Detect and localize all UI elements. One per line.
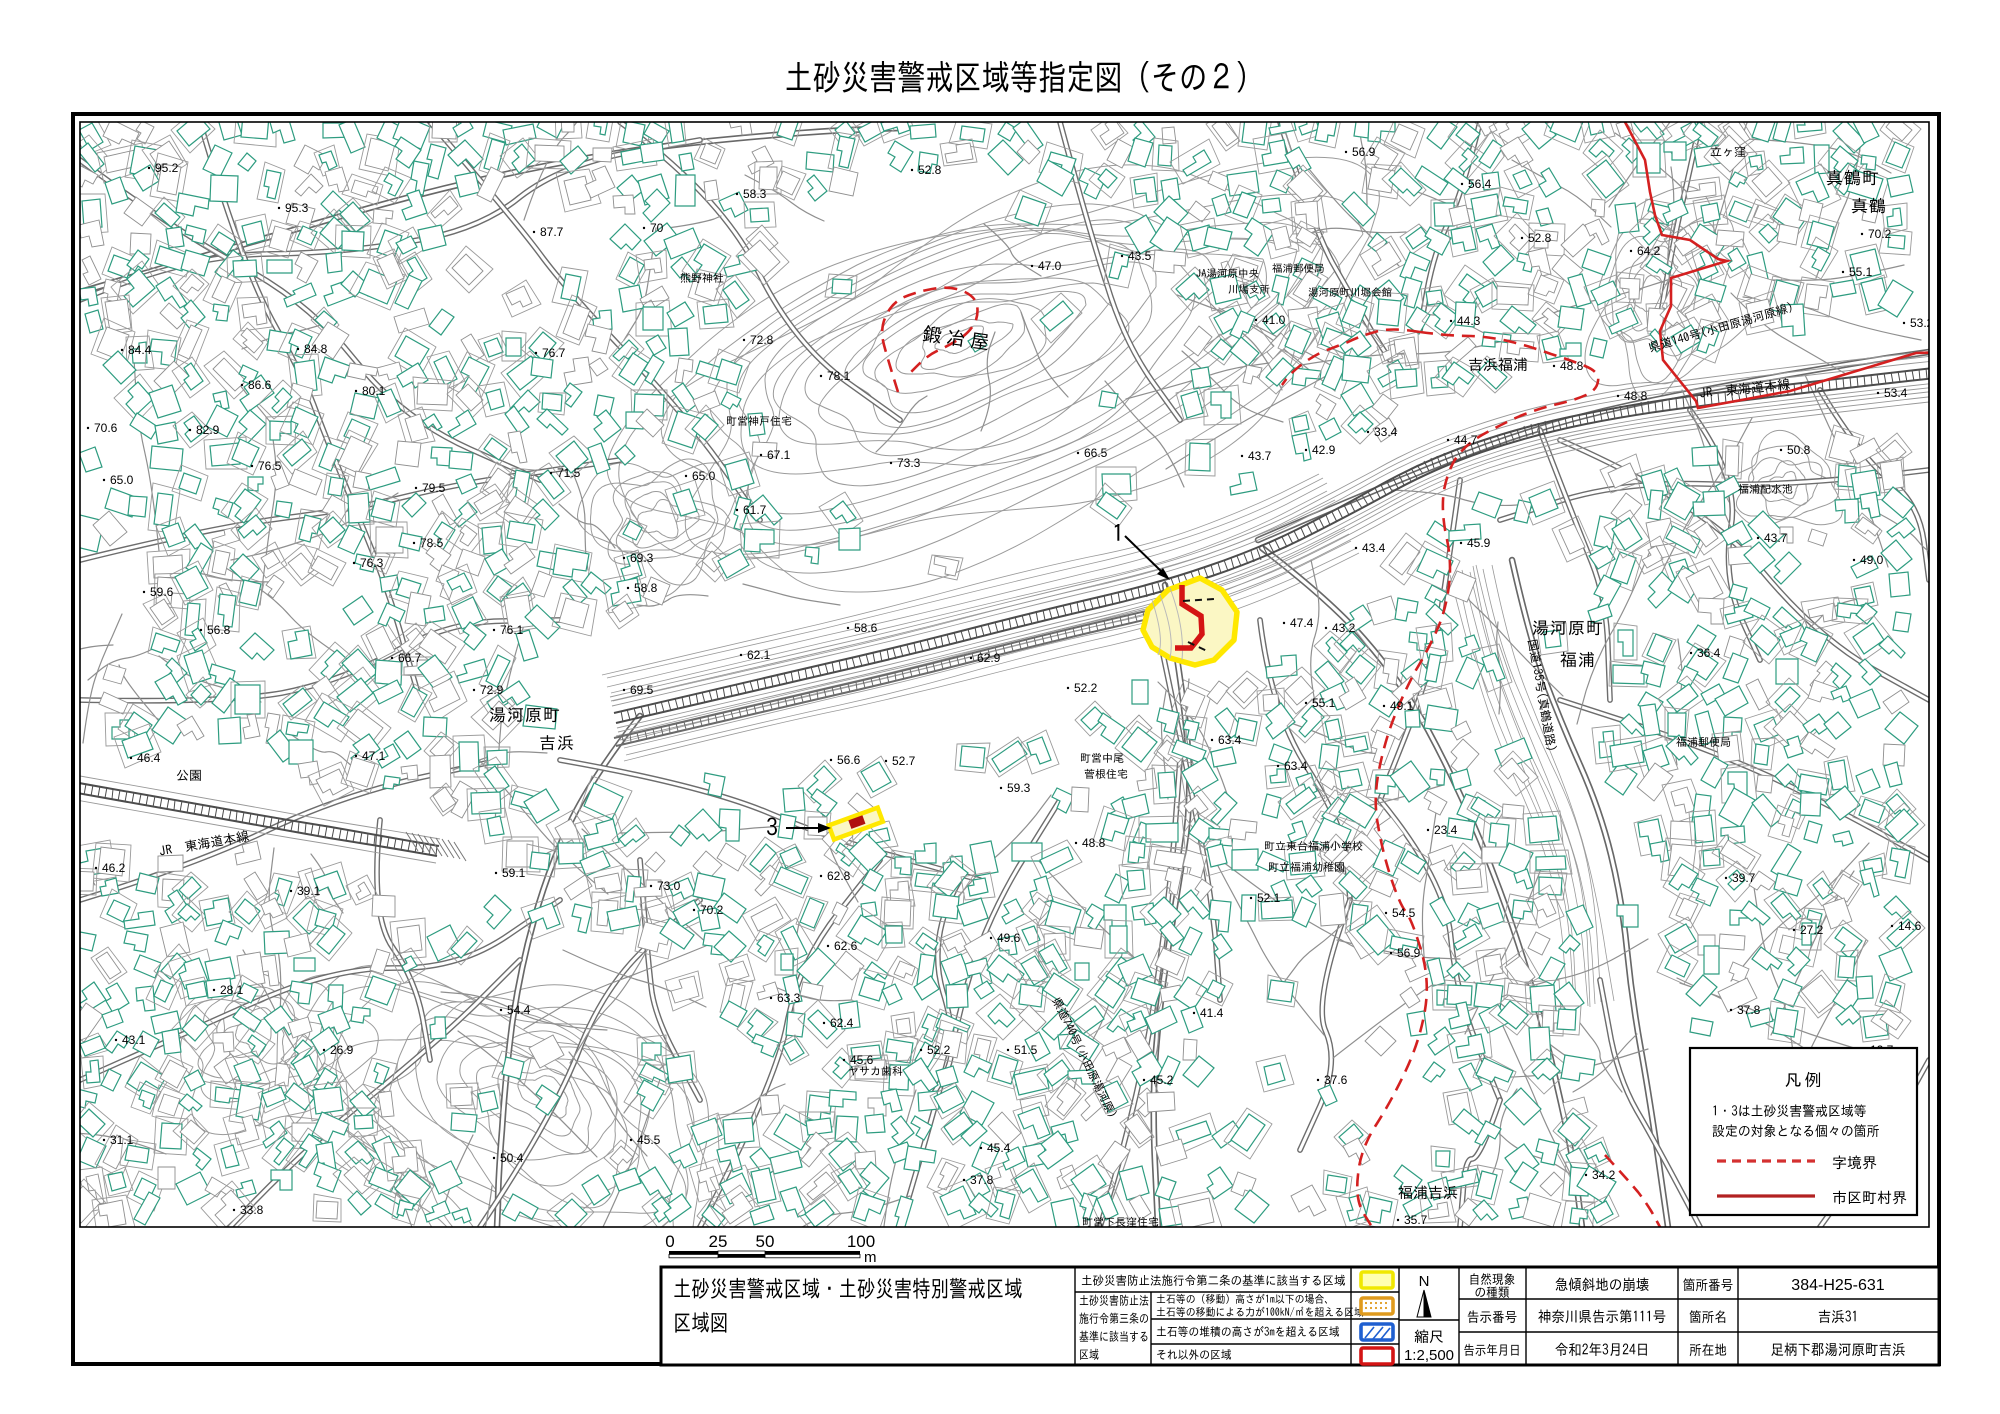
svg-text:N: N: [1419, 1273, 1430, 1290]
svg-text:61.7: 61.7: [743, 503, 767, 517]
svg-text:36.4: 36.4: [1697, 646, 1721, 660]
svg-text:76.7: 76.7: [542, 346, 566, 360]
svg-text:95.3: 95.3: [285, 201, 309, 215]
svg-text:56.4: 56.4: [1468, 177, 1492, 191]
svg-text:54.4: 54.4: [507, 1003, 531, 1017]
svg-text:33.4: 33.4: [1374, 425, 1398, 439]
svg-text:62.9: 62.9: [977, 651, 1001, 665]
svg-text:50.4: 50.4: [500, 1151, 524, 1165]
svg-text:51.5: 51.5: [1014, 1043, 1038, 1057]
svg-text:0: 0: [665, 1232, 674, 1251]
svg-text:72.9: 72.9: [480, 683, 504, 697]
svg-text:46.2: 46.2: [102, 861, 126, 875]
svg-text:33.8: 33.8: [240, 1203, 264, 1217]
svg-text:82.9: 82.9: [196, 423, 220, 437]
svg-text:m: m: [864, 1249, 877, 1266]
svg-text:80.1: 80.1: [362, 384, 386, 398]
svg-text:43.1: 43.1: [122, 1033, 146, 1047]
svg-text:95.2: 95.2: [155, 161, 179, 175]
svg-text:66.5: 66.5: [1084, 446, 1108, 460]
svg-text:49.6: 49.6: [997, 931, 1021, 945]
svg-text:58.8: 58.8: [634, 581, 658, 595]
svg-text:42.9: 42.9: [1312, 443, 1336, 457]
svg-text:86.6: 86.6: [248, 378, 272, 392]
svg-text:14.6: 14.6: [1898, 919, 1922, 933]
svg-text:62.8: 62.8: [827, 869, 851, 883]
svg-text:79.5: 79.5: [422, 481, 446, 495]
svg-text:50: 50: [756, 1232, 775, 1251]
svg-text:25: 25: [709, 1232, 728, 1251]
svg-text:1:2,500: 1:2,500: [1404, 1347, 1454, 1364]
svg-text:47.0: 47.0: [1038, 259, 1062, 273]
svg-text:49.1: 49.1: [1390, 699, 1414, 713]
svg-text:28.1: 28.1: [220, 983, 244, 997]
svg-text:52.8: 52.8: [918, 163, 942, 177]
svg-text:56.9: 56.9: [1352, 145, 1376, 159]
svg-text:62.4: 62.4: [830, 1016, 854, 1030]
svg-text:43.7: 43.7: [1248, 449, 1272, 463]
svg-text:87.7: 87.7: [540, 225, 564, 239]
svg-text:70.2: 70.2: [1868, 227, 1892, 241]
svg-text:48.8: 48.8: [1082, 836, 1106, 850]
svg-text:41.4: 41.4: [1200, 1006, 1224, 1020]
svg-text:69.5: 69.5: [630, 683, 654, 697]
svg-text:37.8: 37.8: [1737, 1003, 1761, 1017]
svg-text:43.5: 43.5: [1128, 249, 1152, 263]
svg-text:63.3: 63.3: [777, 991, 801, 1005]
svg-text:45.6: 45.6: [850, 1053, 874, 1067]
svg-text:64.2: 64.2: [1637, 244, 1661, 258]
svg-text:44.7: 44.7: [1454, 433, 1478, 447]
svg-text:55.1: 55.1: [1849, 265, 1873, 279]
svg-text:76.3: 76.3: [360, 556, 384, 570]
svg-text:48.8: 48.8: [1624, 389, 1648, 403]
svg-text:43.4: 43.4: [1362, 541, 1386, 555]
svg-text:47.4: 47.4: [1290, 616, 1314, 630]
svg-text:55.1: 55.1: [1312, 696, 1336, 710]
svg-text:41.0: 41.0: [1262, 313, 1286, 327]
svg-text:70: 70: [650, 221, 664, 235]
svg-text:50.8: 50.8: [1787, 443, 1811, 457]
svg-text:37.6: 37.6: [1324, 1073, 1348, 1087]
svg-text:26.9: 26.9: [330, 1043, 354, 1057]
svg-text:76.5: 76.5: [258, 459, 282, 473]
svg-text:44.3: 44.3: [1457, 314, 1481, 328]
svg-text:39.7: 39.7: [1732, 871, 1756, 885]
svg-text:31.1: 31.1: [110, 1133, 134, 1147]
svg-text:70.2: 70.2: [700, 903, 724, 917]
svg-text:52.1: 52.1: [1257, 891, 1281, 905]
svg-text:43.7: 43.7: [1764, 531, 1788, 545]
svg-text:52.7: 52.7: [892, 754, 916, 768]
svg-text:58.3: 58.3: [743, 187, 767, 201]
svg-text:84.4: 84.4: [128, 343, 152, 357]
svg-text:76.1: 76.1: [500, 623, 524, 637]
svg-text:56.9: 56.9: [1397, 946, 1421, 960]
svg-text:52.2: 52.2: [1074, 681, 1098, 695]
svg-text:46.4: 46.4: [137, 751, 161, 765]
svg-text:70.6: 70.6: [94, 421, 118, 435]
svg-text:62.6: 62.6: [834, 939, 858, 953]
svg-text:34.2: 34.2: [1592, 1168, 1616, 1182]
svg-text:52.8: 52.8: [1528, 231, 1552, 245]
svg-text:54.5: 54.5: [1392, 906, 1416, 920]
svg-text:66.7: 66.7: [398, 651, 422, 665]
svg-text:84.8: 84.8: [304, 342, 328, 356]
svg-text:73.0: 73.0: [657, 879, 681, 893]
svg-text:56.6: 56.6: [837, 753, 861, 767]
svg-text:45.5: 45.5: [637, 1133, 661, 1147]
svg-text:39.1: 39.1: [297, 884, 321, 898]
svg-text:72.8: 72.8: [750, 333, 774, 347]
svg-text:59.1: 59.1: [502, 866, 526, 880]
svg-text:69.3: 69.3: [630, 551, 654, 565]
svg-text:63.4: 63.4: [1284, 759, 1308, 773]
svg-text:59.6: 59.6: [150, 585, 174, 599]
svg-text:43.2: 43.2: [1332, 621, 1356, 635]
svg-text:52.2: 52.2: [927, 1043, 951, 1057]
svg-text:67.1: 67.1: [767, 448, 791, 462]
svg-text:53.4: 53.4: [1884, 386, 1908, 400]
svg-text:47.1: 47.1: [362, 749, 386, 763]
svg-text:56.8: 56.8: [207, 623, 231, 637]
svg-text:78.1: 78.1: [827, 369, 851, 383]
svg-text:62.1: 62.1: [747, 648, 771, 662]
svg-text:58.6: 58.6: [854, 621, 878, 635]
svg-text:63.4: 63.4: [1218, 733, 1242, 747]
svg-text:65.0: 65.0: [692, 469, 716, 483]
svg-text:48.8: 48.8: [1560, 359, 1584, 373]
svg-text:71.5: 71.5: [557, 466, 581, 480]
svg-text:73.3: 73.3: [897, 456, 921, 470]
svg-text:27.2: 27.2: [1800, 923, 1824, 937]
svg-text:59.3: 59.3: [1007, 781, 1031, 795]
svg-text:78.5: 78.5: [420, 536, 444, 550]
svg-text:45.9: 45.9: [1467, 536, 1491, 550]
svg-text:37.8: 37.8: [970, 1173, 994, 1187]
svg-text:45.2: 45.2: [1150, 1073, 1174, 1087]
svg-text:384-H25-631: 384-H25-631: [1791, 1277, 1885, 1294]
svg-text:23.4: 23.4: [1434, 823, 1458, 837]
svg-text:35.7: 35.7: [1404, 1213, 1428, 1227]
svg-text:65.0: 65.0: [110, 473, 134, 487]
svg-text:49.0: 49.0: [1860, 553, 1884, 567]
svg-text:45.4: 45.4: [987, 1141, 1011, 1155]
